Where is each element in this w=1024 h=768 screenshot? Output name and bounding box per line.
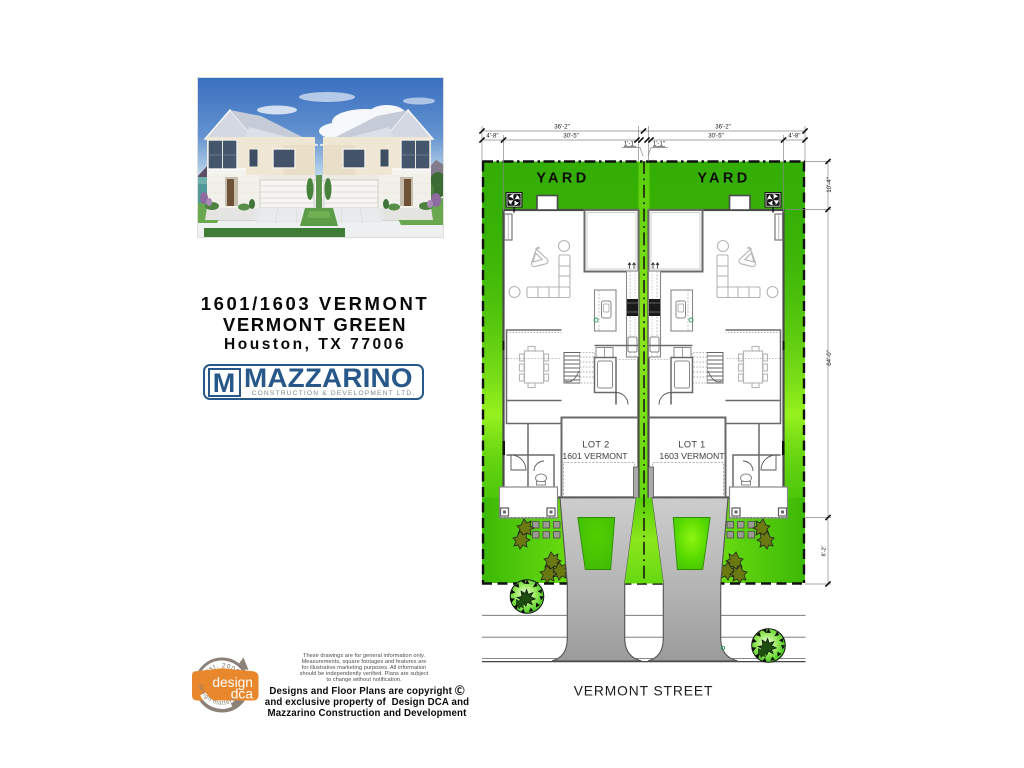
- svg-text:10'-4": 10'-4": [826, 177, 833, 193]
- svg-text:YARD: YARD: [697, 171, 750, 187]
- svg-text:36'-2": 36'-2": [715, 124, 731, 131]
- svg-text:1601 VERMONT: 1601 VERMONT: [562, 451, 628, 461]
- svg-text:1'-1": 1'-1": [624, 141, 636, 148]
- svg-text:30'-5": 30'-5": [708, 133, 724, 140]
- svg-text:36'-2": 36'-2": [554, 124, 570, 131]
- svg-text:4'-8": 4'-8": [788, 133, 800, 140]
- svg-text:8'-2": 8'-2": [822, 545, 828, 556]
- svg-text:1603 VERMONT: 1603 VERMONT: [659, 451, 725, 461]
- svg-text:64'-0": 64'-0": [826, 350, 833, 366]
- svg-text:1'-1": 1'-1": [653, 141, 665, 148]
- svg-text:LOT 1: LOT 1: [678, 440, 705, 450]
- svg-text:30'-5": 30'-5": [563, 133, 579, 140]
- svg-text:YARD: YARD: [536, 171, 589, 187]
- svg-text:LOT 2: LOT 2: [582, 440, 609, 450]
- svg-text:4'-8": 4'-8": [486, 133, 498, 140]
- svg-text:VERMONT STREET: VERMONT STREET: [574, 684, 714, 699]
